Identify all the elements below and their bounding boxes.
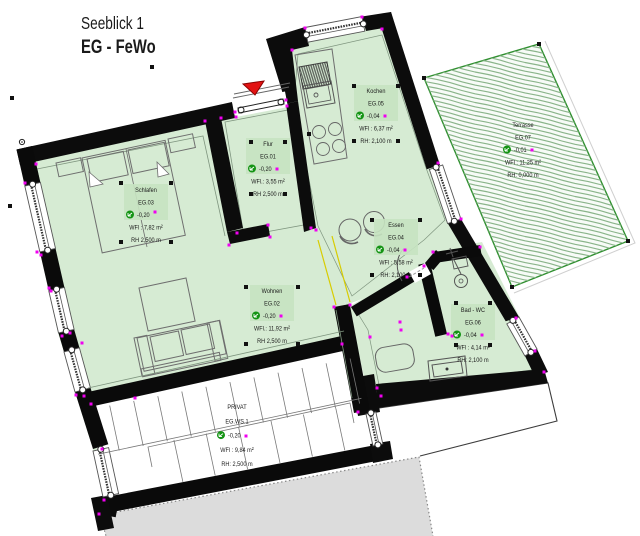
svg-text:-0,04: -0,04 [367,113,380,121]
svg-text:-0,20: -0,20 [228,432,241,440]
svg-text:-0,01: -0,01 [514,147,527,155]
svg-text:EG.WS.1: EG.WS.1 [225,418,249,426]
svg-text:RH: 2,100 m: RH: 2,100 m [360,138,391,146]
svg-text:WFl : 11,25 m²: WFl : 11,25 m² [505,159,541,167]
svg-text:Bad - WC: Bad - WC [461,307,486,315]
svg-text:EG.05: EG.05 [368,100,384,108]
svg-text:Flur: Flur [263,141,273,149]
svg-text:EG.04: EG.04 [388,234,404,242]
svg-text:EG.01: EG.01 [260,153,276,161]
svg-text:RH: 2,100 m: RH: 2,100 m [457,357,488,365]
svg-text:Essen: Essen [388,222,404,230]
svg-text:RH: 2,500 m: RH: 2,500 m [221,461,252,469]
svg-text:RH: 0,000 m: RH: 0,000 m [507,172,538,180]
svg-text:RH 2,500 m: RH 2,500 m [257,338,287,346]
svg-text:PRIVAT: PRIVAT [227,404,246,412]
svg-text:WFl : 9,84 m²: WFl : 9,84 m² [220,446,253,454]
svg-text:Terrasse: Terrasse [512,122,534,130]
svg-text:WFl : 7,82 m²: WFl : 7,82 m² [129,224,162,232]
svg-text:-0,04: -0,04 [464,332,477,340]
svg-text:Kochen: Kochen [367,88,386,96]
svg-text:WFl.: 3,55 m²: WFl.: 3,55 m² [251,178,284,186]
svg-text:EG.07: EG.07 [515,134,531,142]
svg-text:WFl : 6,37 m²: WFl : 6,37 m² [359,125,392,133]
svg-text:Schlafen: Schlafen [135,187,157,195]
svg-text:EG.02: EG.02 [264,300,280,308]
svg-text:RH 2,500 m: RH 2,500 m [131,237,161,245]
svg-text:-0,20: -0,20 [259,166,272,174]
svg-text:RH 2,500 m: RH 2,500 m [253,191,283,199]
svg-text:-0,20: -0,20 [137,212,150,220]
svg-text:WFl : 4,14 m²: WFl : 4,14 m² [456,344,489,352]
svg-text:EG.03: EG.03 [138,199,154,207]
svg-text:-0,04: -0,04 [387,247,400,255]
svg-text:Wohnen: Wohnen [262,288,283,296]
svg-text:WFl.: 11,92 m²: WFl.: 11,92 m² [254,325,290,333]
svg-text:-0,20: -0,20 [263,313,276,321]
svg-text:WFl : 5,58 m²: WFl : 5,58 m² [379,259,412,267]
svg-text:EG.06: EG.06 [465,319,481,327]
